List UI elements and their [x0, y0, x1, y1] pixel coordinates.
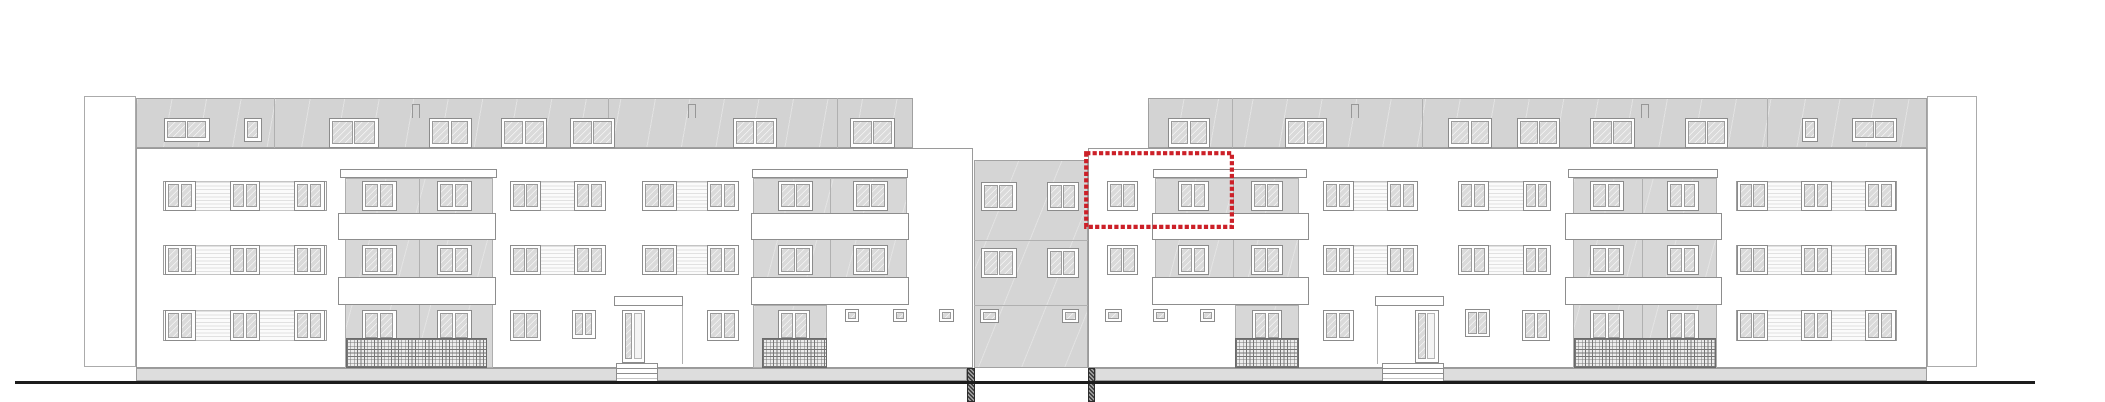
glass-pane — [1063, 251, 1075, 275]
glass-pane — [1670, 248, 1682, 272]
window — [1667, 245, 1699, 276]
window — [1465, 309, 1490, 338]
glass-pane — [1753, 313, 1765, 338]
bay-cornice — [1568, 169, 1718, 178]
glass-pane — [756, 121, 774, 145]
glass-pane — [181, 313, 192, 338]
glass-pane — [984, 185, 998, 208]
glass-pane — [645, 184, 659, 208]
window — [1801, 245, 1832, 276]
glass-pane — [1608, 184, 1621, 208]
glass-pane — [1190, 121, 1207, 145]
glass-pane — [167, 121, 186, 139]
louver-panel — [677, 245, 707, 276]
window — [1458, 181, 1489, 211]
window — [1458, 245, 1489, 276]
window — [572, 310, 596, 339]
window — [574, 245, 606, 276]
window — [362, 245, 397, 276]
window — [642, 181, 677, 211]
glass-pane — [1593, 121, 1612, 145]
louver-panel — [1768, 310, 1801, 341]
window — [230, 245, 261, 276]
roof-vent-stack — [412, 104, 420, 118]
left-building-plinth — [136, 368, 967, 381]
glass-pane — [593, 121, 612, 145]
window — [1737, 310, 1768, 341]
glass-pane — [1050, 251, 1062, 275]
glass-pane — [1804, 248, 1815, 272]
attic-window — [570, 118, 615, 148]
window — [1523, 245, 1551, 276]
roof-vent-stack — [688, 104, 696, 118]
glass-pane — [1468, 312, 1477, 334]
window — [1801, 181, 1832, 211]
louver-panel — [1832, 181, 1866, 211]
glass-pane — [1804, 313, 1815, 338]
attic-joint — [1232, 98, 1233, 148]
window — [230, 181, 261, 211]
glass-pane — [1326, 248, 1337, 272]
glass-pane — [1740, 248, 1752, 272]
louver-panel — [1354, 181, 1387, 211]
glass-pane — [233, 313, 244, 338]
window — [437, 245, 472, 276]
window — [510, 310, 541, 341]
glass-pane — [1254, 184, 1266, 208]
window — [1252, 310, 1283, 341]
glass-pane — [440, 184, 454, 208]
window — [1251, 245, 1283, 276]
glass-pane — [451, 121, 469, 145]
glass-pane — [1593, 313, 1606, 338]
window — [165, 245, 196, 276]
louver-panel — [260, 310, 294, 341]
glass-pane — [577, 184, 589, 208]
glass-pane — [247, 121, 259, 139]
glass-pane — [1593, 248, 1606, 272]
glass-pane — [1110, 248, 1122, 272]
glass-pane — [233, 184, 244, 208]
glass-pane — [1339, 248, 1350, 272]
attic-window — [429, 118, 472, 148]
glass-pane — [1181, 248, 1192, 272]
louver-panel — [1768, 245, 1801, 276]
glass-pane — [577, 248, 589, 272]
window — [1107, 245, 1138, 276]
glass-pane — [873, 121, 892, 145]
glass-pane — [1855, 121, 1874, 139]
glass-pane — [513, 313, 525, 338]
glass-pane — [1267, 248, 1279, 272]
attic-joint — [1767, 98, 1768, 148]
glass-pane — [853, 121, 872, 145]
glass-pane — [999, 251, 1013, 275]
glass-pane — [1868, 184, 1879, 208]
basement-vent-window — [939, 309, 954, 323]
bay-joint — [1642, 178, 1643, 338]
passage-wall-section — [1088, 368, 1096, 402]
attic-window — [850, 118, 895, 148]
glass-pane — [1326, 313, 1337, 338]
glass-pane — [181, 184, 192, 208]
window — [1667, 181, 1699, 211]
glass-pane — [525, 121, 544, 145]
glass-pane — [1526, 248, 1536, 272]
attic-joint — [1422, 98, 1423, 148]
window — [1387, 181, 1418, 211]
attic-window — [1852, 118, 1897, 142]
glass-pane — [1171, 121, 1188, 145]
glass-pane — [1203, 312, 1212, 320]
louver-panel — [541, 245, 574, 276]
glass-pane — [1403, 184, 1415, 208]
louver-panel — [1832, 245, 1866, 276]
window — [1323, 245, 1354, 276]
attic-window — [329, 118, 379, 148]
window — [294, 245, 325, 276]
window — [1523, 181, 1551, 211]
glass-pane — [1339, 184, 1350, 208]
glass-pane — [332, 121, 353, 145]
louver-panel — [1768, 181, 1801, 211]
balcony-railing-grate — [1235, 338, 1299, 368]
window — [510, 181, 541, 211]
glass-pane — [896, 312, 904, 320]
glass-pane — [1537, 313, 1547, 338]
glass-pane — [504, 121, 523, 145]
window — [362, 310, 397, 341]
entrance-door — [622, 310, 646, 363]
glass-pane — [526, 248, 538, 272]
glass-pane — [1817, 184, 1828, 208]
window — [165, 310, 196, 341]
entrance-niche-edge — [1377, 306, 1378, 364]
glass-pane — [871, 248, 885, 272]
glass-pane — [1526, 184, 1536, 208]
attic-window — [1802, 118, 1818, 142]
louver-panel — [196, 310, 230, 341]
marker-rect — [1086, 153, 1232, 227]
door-side-panel — [634, 313, 642, 360]
glass-pane — [297, 313, 308, 338]
window — [165, 181, 196, 211]
glass-pane — [796, 184, 810, 208]
glass-pane — [365, 248, 379, 272]
right-end-wall — [1927, 96, 1977, 367]
window — [778, 181, 813, 211]
entrance-canopy — [1375, 296, 1444, 307]
glass-pane — [1254, 248, 1266, 272]
glass-pane — [380, 248, 394, 272]
balcony-railing-grate — [1574, 338, 1716, 368]
door-side-panel — [1427, 313, 1435, 360]
glass-pane — [310, 313, 321, 338]
glass-pane — [856, 184, 870, 208]
window — [1737, 245, 1768, 276]
glass-pane — [585, 313, 593, 335]
glass-pane — [168, 248, 179, 272]
glass-pane — [1474, 248, 1485, 272]
glass-pane — [781, 248, 795, 272]
glass-pane — [1881, 248, 1892, 272]
glass-pane — [526, 313, 538, 338]
glass-pane — [710, 248, 722, 272]
glass-pane — [310, 184, 321, 208]
glass-pane — [380, 313, 394, 338]
window — [1590, 181, 1624, 211]
glass-pane — [1868, 248, 1879, 272]
glass-pane — [1613, 121, 1632, 145]
roof-vent-stack — [1351, 104, 1359, 118]
glass-pane — [710, 313, 722, 338]
window — [1865, 181, 1896, 211]
balcony-slab — [1152, 277, 1309, 305]
window — [1865, 245, 1896, 276]
glass-pane — [724, 248, 736, 272]
window — [510, 245, 541, 276]
entrance-niche-edge — [682, 306, 683, 364]
louver-panel — [1832, 310, 1866, 341]
glass-pane — [1525, 313, 1535, 338]
glass-pane — [1688, 121, 1706, 145]
glass-pane — [1063, 185, 1075, 208]
window — [437, 181, 472, 211]
glass-pane — [246, 313, 257, 338]
louver-panel — [1354, 245, 1387, 276]
window — [853, 181, 888, 211]
glass-pane — [1538, 248, 1548, 272]
window — [707, 181, 739, 211]
glass-pane — [246, 184, 257, 208]
glass-pane — [984, 251, 998, 275]
balcony-slab — [338, 213, 496, 241]
glass-pane — [380, 184, 394, 208]
glass-pane — [1326, 184, 1337, 208]
glass-pane — [1255, 313, 1266, 338]
glass-pane — [1268, 313, 1279, 338]
attic-joint — [274, 98, 275, 148]
attic-window — [164, 118, 210, 142]
glass-pane — [526, 184, 538, 208]
window — [1178, 245, 1209, 276]
glass-pane — [591, 184, 603, 208]
glass-pane — [1684, 313, 1696, 338]
glass-pane — [625, 313, 633, 360]
glass-pane — [1753, 184, 1765, 208]
glass-pane — [513, 248, 525, 272]
glass-pane — [1593, 184, 1606, 208]
balcony-slab — [1565, 277, 1722, 305]
roof-vent-stack — [1641, 104, 1649, 118]
attic-window — [1517, 118, 1560, 148]
glass-pane — [1817, 248, 1828, 272]
bay-joint — [419, 178, 420, 338]
highlighted-apartment-outline — [1082, 149, 1236, 231]
glass-pane — [1539, 121, 1557, 145]
window — [981, 182, 1017, 212]
glass-pane — [168, 313, 179, 338]
glass-pane — [1684, 184, 1696, 208]
basement-vent-window — [1153, 309, 1168, 323]
glass-pane — [710, 184, 722, 208]
glass-pane — [1753, 248, 1765, 272]
balcony-railing-grate — [346, 338, 487, 368]
glass-pane — [1670, 184, 1682, 208]
glass-pane — [365, 184, 379, 208]
window — [1047, 182, 1079, 212]
glass-pane — [455, 248, 469, 272]
glass-pane — [1461, 248, 1472, 272]
balcony-slab — [1565, 213, 1722, 241]
glass-pane — [942, 312, 951, 320]
window — [294, 181, 325, 211]
glass-pane — [187, 121, 206, 139]
glass-pane — [781, 313, 793, 338]
glass-pane — [455, 313, 469, 338]
glass-pane — [1418, 313, 1426, 360]
louver-panel — [196, 245, 230, 276]
glass-pane — [513, 184, 525, 208]
glass-pane — [1390, 184, 1402, 208]
window — [1251, 181, 1283, 211]
passage-wall-section — [967, 368, 975, 402]
attic-window — [1168, 118, 1210, 148]
glass-pane — [573, 121, 592, 145]
glass-pane — [1881, 313, 1892, 338]
glass-pane — [983, 312, 996, 320]
louver-panel — [541, 181, 574, 211]
glass-pane — [1520, 121, 1538, 145]
attic-window — [1285, 118, 1327, 148]
window — [1323, 181, 1354, 211]
louver-panel — [196, 181, 230, 211]
basement-vent-window — [1062, 309, 1079, 323]
glass-pane — [999, 185, 1013, 208]
glass-pane — [848, 312, 856, 320]
glass-pane — [1875, 121, 1894, 139]
glass-pane — [781, 184, 795, 208]
glass-pane — [1050, 185, 1062, 208]
glass-pane — [432, 121, 450, 145]
window — [362, 181, 397, 211]
glass-pane — [1868, 313, 1879, 338]
window — [294, 310, 325, 341]
glass-pane — [871, 184, 885, 208]
glass-pane — [1390, 248, 1402, 272]
basement-vent-window — [980, 309, 999, 323]
window — [1590, 245, 1624, 276]
window — [642, 245, 677, 276]
basement-vent-window — [1105, 309, 1122, 323]
glass-pane — [310, 248, 321, 272]
left-end-wall — [84, 96, 137, 367]
glass-pane — [1267, 184, 1279, 208]
window — [1522, 310, 1550, 341]
glass-pane — [660, 248, 674, 272]
entrance-steps — [1382, 363, 1444, 382]
glass-pane — [440, 248, 454, 272]
glass-pane — [724, 313, 736, 338]
louver-panel — [1489, 181, 1524, 211]
glass-pane — [365, 313, 379, 338]
window — [1590, 310, 1624, 341]
window — [707, 245, 739, 276]
glass-pane — [591, 248, 603, 272]
window — [1323, 310, 1354, 341]
window — [778, 245, 813, 276]
window — [778, 310, 810, 341]
glass-pane — [1817, 313, 1828, 338]
window — [1865, 310, 1896, 341]
attic-window — [1685, 118, 1728, 148]
balcony-slab — [751, 213, 909, 241]
attic-window — [733, 118, 777, 148]
glass-pane — [168, 184, 179, 208]
connector-floor-line — [974, 305, 1089, 306]
window — [981, 248, 1017, 278]
louver-panel — [677, 181, 707, 211]
window — [1737, 181, 1768, 211]
glass-pane — [645, 248, 659, 272]
window — [230, 310, 261, 341]
glass-pane — [660, 184, 674, 208]
glass-pane — [1608, 248, 1621, 272]
glass-pane — [354, 121, 375, 145]
balcony-slab — [338, 277, 496, 305]
window — [707, 310, 739, 341]
louver-panel — [260, 181, 294, 211]
glass-pane — [1474, 184, 1485, 208]
glass-pane — [440, 313, 454, 338]
bay-cornice — [752, 169, 909, 178]
louver-panel — [260, 245, 294, 276]
glass-pane — [181, 248, 192, 272]
ground-line — [15, 381, 2035, 385]
glass-pane — [1805, 121, 1815, 139]
glass-pane — [1804, 184, 1815, 208]
entrance-canopy — [614, 296, 683, 307]
balcony-slab — [751, 277, 909, 305]
basement-vent-window — [845, 309, 859, 323]
glass-pane — [297, 184, 308, 208]
window — [437, 310, 472, 341]
window — [853, 245, 888, 276]
glass-pane — [1307, 121, 1324, 145]
glass-pane — [455, 184, 469, 208]
bay-cornice — [340, 169, 497, 178]
glass-pane — [1740, 184, 1752, 208]
elevation-drawing — [0, 0, 2105, 402]
window — [1387, 245, 1418, 276]
glass-pane — [1403, 248, 1415, 272]
glass-pane — [1707, 121, 1725, 145]
glass-pane — [1461, 184, 1472, 208]
glass-pane — [1339, 313, 1350, 338]
basement-vent-window — [893, 309, 907, 323]
glass-pane — [1471, 121, 1489, 145]
glass-pane — [233, 248, 244, 272]
window — [1801, 310, 1832, 341]
window — [574, 181, 606, 211]
glass-pane — [856, 248, 870, 272]
right-building-plinth — [1095, 368, 1927, 381]
glass-pane — [1288, 121, 1305, 145]
glass-pane — [1538, 184, 1548, 208]
glass-pane — [1670, 313, 1682, 338]
glass-pane — [1478, 312, 1487, 334]
glass-pane — [1451, 121, 1469, 145]
